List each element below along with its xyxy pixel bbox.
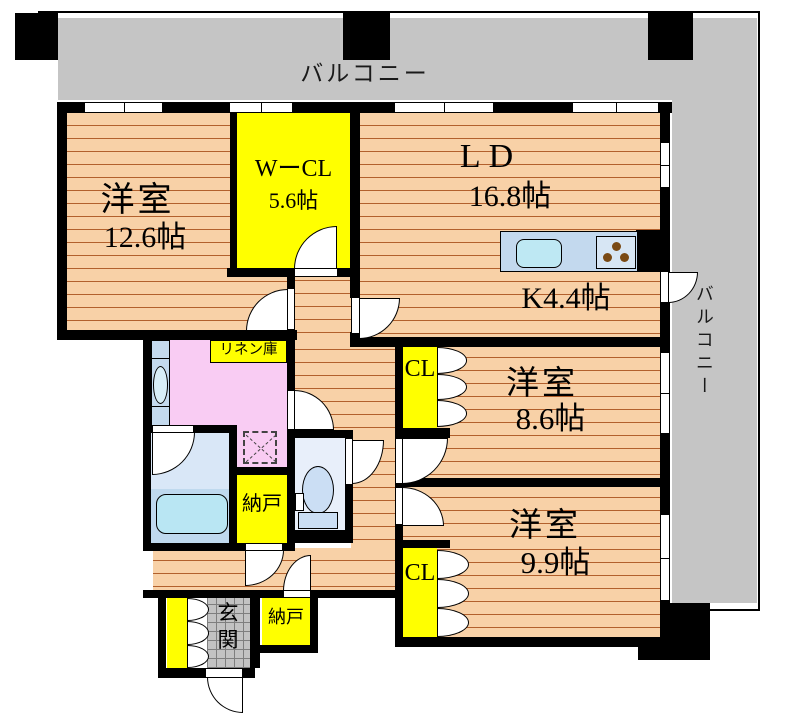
door-leaf — [294, 268, 338, 277]
wall — [395, 428, 450, 438]
balcony-top-label: バルコニー — [280, 62, 450, 86]
wall — [252, 645, 318, 653]
wall — [287, 530, 353, 543]
stove-burner-icon — [620, 253, 629, 262]
bedroom2-name-label: 洋室 — [447, 367, 637, 402]
wall — [395, 540, 450, 548]
pillar-top-right — [648, 13, 693, 60]
bedroom2-area-label: 8.6帖 — [453, 403, 648, 436]
linen-closet-label: リネン庫 — [210, 343, 287, 358]
kitchen-stove — [596, 236, 636, 269]
storage1-label: 納戸 — [237, 494, 287, 515]
door-leaf — [287, 288, 295, 330]
window — [660, 515, 670, 600]
washing-machine-space — [243, 431, 277, 464]
toilet-tank — [298, 512, 338, 529]
closet-bedroom2-label: CL — [403, 351, 437, 388]
living-dining-name-label: LD — [408, 139, 573, 175]
wall — [143, 330, 151, 551]
wall — [143, 543, 245, 551]
wall — [250, 592, 260, 668]
bedroom1-area-label: 12.6帖 — [40, 222, 250, 254]
window — [573, 102, 658, 113]
window — [660, 143, 670, 187]
entrance-shoe-closet — [167, 597, 187, 668]
hallway-floor-upper — [293, 268, 354, 339]
vanity-sink — [153, 366, 168, 404]
kitchen-sink — [516, 239, 562, 268]
wall — [158, 668, 205, 678]
wall — [229, 425, 237, 551]
vanity-divider — [151, 406, 170, 407]
stove-burner-icon — [603, 253, 612, 262]
bedroom3-name-label: 洋室 — [450, 509, 640, 544]
vanity-divider — [151, 358, 170, 359]
wall — [310, 590, 318, 653]
balcony-right — [672, 100, 757, 603]
toilet-bowl — [302, 466, 334, 514]
balcony-outer-line-bottom — [710, 609, 760, 611]
walk-in-closet-area-label: 5.6帖 — [237, 189, 350, 212]
wall — [395, 478, 670, 487]
wall — [311, 590, 401, 598]
window — [395, 102, 493, 113]
walk-in-closet-name-label: WーCL — [237, 157, 350, 182]
toilet-cistern — [295, 493, 304, 511]
wall — [395, 637, 662, 647]
closet-bedroom3-label: CL — [403, 555, 437, 592]
storage2-label: 納戸 — [262, 608, 310, 627]
window — [85, 102, 162, 113]
door-leaf — [283, 590, 311, 598]
wall — [227, 268, 296, 277]
kitchen-pillar — [636, 230, 662, 272]
folding-door-shoe-closet — [187, 598, 209, 668]
pillar-top-middle — [343, 13, 390, 60]
bathtub — [156, 494, 228, 534]
wall — [350, 102, 360, 298]
balcony-right-label: バルコニー — [694, 266, 713, 416]
wall — [57, 330, 297, 340]
stove-burner-icon — [612, 242, 621, 251]
wall — [287, 430, 353, 438]
wall — [283, 543, 295, 551]
living-dining-area-label: 16.8帖 — [420, 181, 600, 213]
pillar-top-left — [15, 13, 58, 60]
window — [660, 353, 670, 433]
door-arc-entrance — [207, 677, 243, 713]
wall — [158, 592, 166, 678]
wall — [243, 668, 255, 678]
window — [230, 102, 292, 113]
kitchen-label: K4.4帖 — [466, 283, 666, 315]
wall — [229, 467, 295, 475]
bedroom3-area-label: 9.9帖 — [458, 547, 653, 580]
floor-plan: バルコニー バルコニー 洋室 12.6帖 WーCL 5.6帖 LD 16.8帖 … — [0, 0, 791, 728]
bedroom1-name-label: 洋室 — [40, 183, 235, 219]
balcony-outer-line-right — [758, 11, 760, 611]
wall — [345, 485, 353, 543]
wall — [57, 102, 67, 340]
entrance-label: 玄関 — [214, 600, 242, 654]
